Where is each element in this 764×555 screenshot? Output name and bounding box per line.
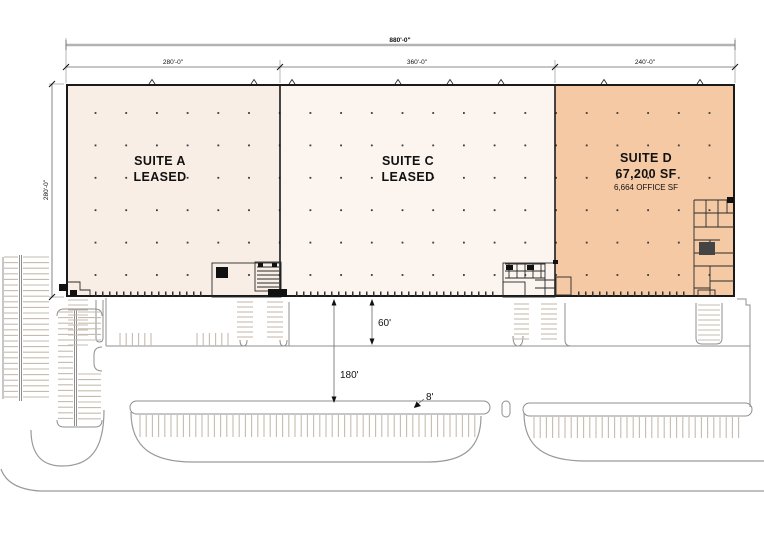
right-drive-edge (737, 299, 750, 407)
landscape-median (523, 403, 752, 416)
suite-a-name-label: SUITE A (134, 154, 186, 168)
median-width-label: 8' (426, 392, 434, 403)
parking-island (502, 401, 510, 417)
suite-a-status-label: LEASED (133, 170, 186, 184)
site-plan-drawing: 880'-0" 280'-0" 360'-0" 240'-0" 280'-0" (0, 0, 764, 555)
entry-vestibule-detail (59, 284, 68, 291)
site-plan-canvas: 880'-0" 280'-0" 360'-0" 240'-0" 280'-0" (0, 0, 764, 555)
stair-core-detail (699, 242, 715, 255)
suite-d-area-label: 67,200 SF (615, 167, 676, 181)
truck-court-depth-label: 180' (340, 370, 359, 381)
parking-stall-lines (120, 333, 739, 438)
suite-c-status-label: LEASED (381, 170, 434, 184)
dock-office-detail (268, 289, 287, 297)
landscape-median (130, 401, 490, 414)
building-depth-dimension: 280'-0" (43, 179, 50, 200)
suite-d-name-label: SUITE D (620, 151, 672, 165)
entry-vestibule-detail (70, 290, 77, 296)
suite-a-width-dimension: 280'-0" (163, 59, 184, 66)
top-dimensions: 880'-0" 280'-0" 360'-0" 240'-0" (63, 37, 738, 83)
suite-d-office-area-label: 6,664 OFFICE SF (614, 183, 678, 192)
roof-joint-ticks (149, 80, 703, 85)
suite-a-region (66, 84, 280, 297)
suite-d-width-dimension: 240'-0" (635, 59, 656, 66)
left-dimension: 280'-0" (43, 81, 64, 300)
street-curb (1, 469, 764, 491)
suite-c-region (280, 84, 555, 297)
suite-c-name-label: SUITE C (382, 154, 434, 168)
suite-c-width-dimension: 360'-0" (407, 59, 428, 66)
stair-core-detail (216, 267, 228, 278)
site-measurements: 60' 180' 8' (332, 299, 434, 408)
apron-depth-label: 60' (378, 318, 391, 329)
overall-width-dimension: 880'-0" (389, 37, 410, 44)
